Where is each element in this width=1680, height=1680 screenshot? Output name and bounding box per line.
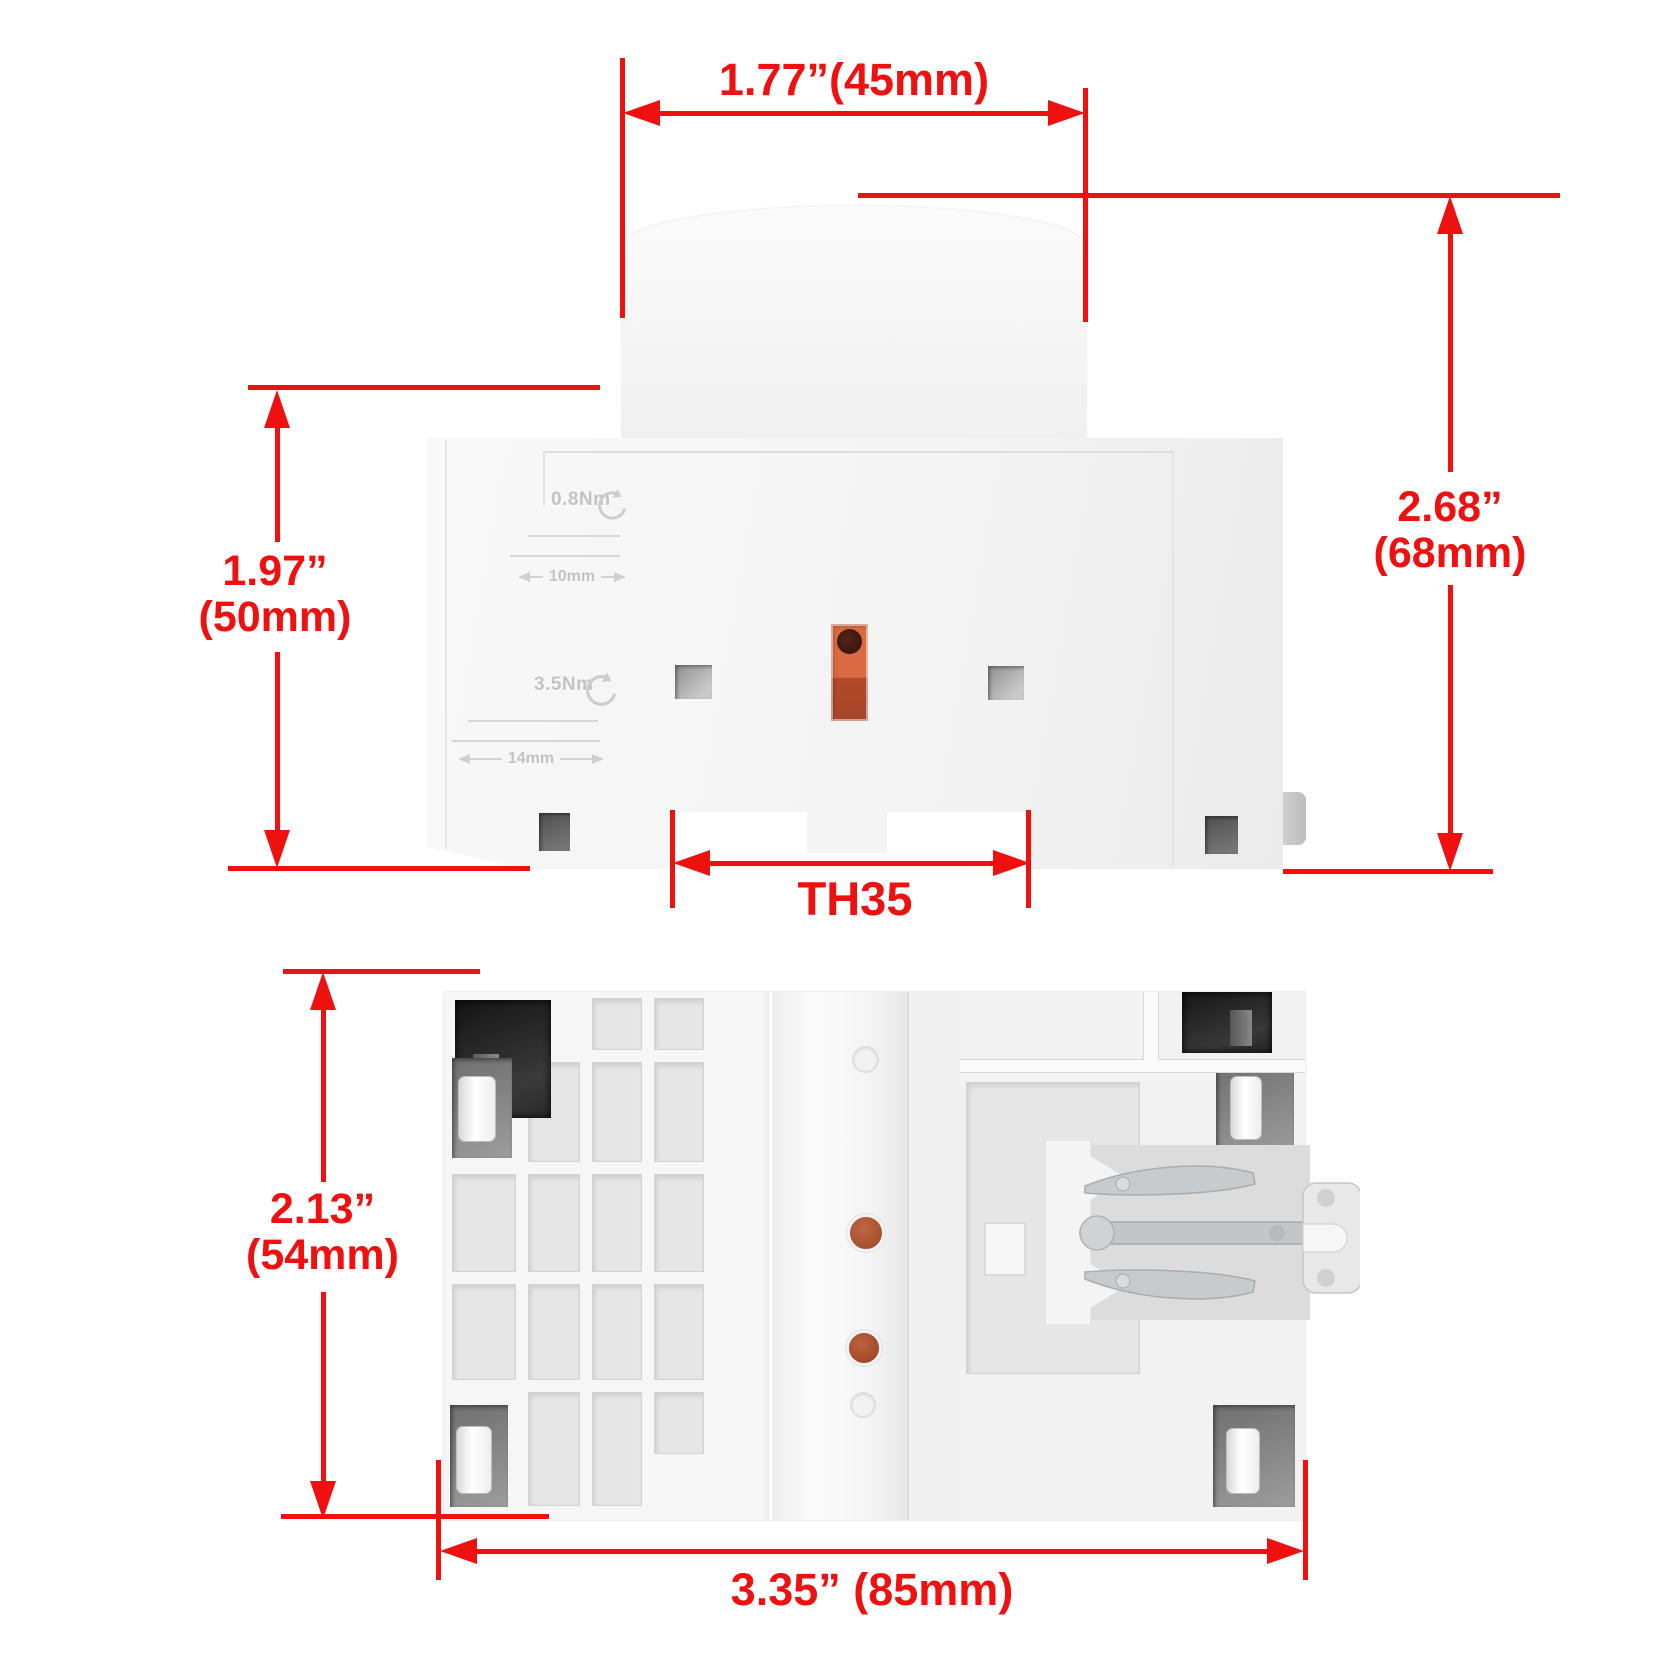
clip-release-tab xyxy=(1303,1183,1360,1293)
center-channel-ridge xyxy=(770,992,909,1520)
arrow-left-icon xyxy=(673,850,710,876)
gauge-upper-dim: 10mm xyxy=(518,568,626,586)
dimension-label-height-68mm: 2.68” (68mm) xyxy=(1330,484,1570,577)
manual-switch-slot xyxy=(831,624,868,721)
arrow-down-icon xyxy=(310,1481,336,1519)
arrow-left-icon xyxy=(440,1538,477,1564)
product-dimension-diagram: 0.8Nm 10mm 3.5Nm 14mm 1.77”(45mm) 2.68” xyxy=(0,0,1680,1680)
arrow-up-icon xyxy=(310,972,336,1010)
arrow-right-icon xyxy=(993,850,1030,876)
roller-clip xyxy=(1226,1428,1260,1494)
grid-cell xyxy=(592,1392,642,1506)
arrow-right-icon xyxy=(1267,1538,1304,1564)
contactor-head xyxy=(622,206,1086,446)
roller-clip xyxy=(1230,1076,1262,1140)
dimension-label-width-85mm: 3.35” (85mm) xyxy=(572,1566,1172,1615)
terminal-clamp xyxy=(1230,1010,1252,1046)
rib-grid xyxy=(444,992,764,1520)
bottom-square-hole-left xyxy=(539,813,570,851)
arrow-down-icon xyxy=(1437,833,1463,871)
gauge-upper-bracket2 xyxy=(510,555,620,557)
engraved-arrow-left-icon xyxy=(518,572,530,582)
square-hole-left xyxy=(675,665,712,699)
mold-line xyxy=(543,451,1173,453)
grid-cell xyxy=(592,1174,642,1272)
dimension-label-din-rail: TH35 xyxy=(755,874,955,925)
dim-inches: 1.97” xyxy=(160,548,390,594)
grid-cell xyxy=(528,1174,580,1272)
left-flange-line xyxy=(445,440,447,848)
clockwise-arrow-icon xyxy=(589,483,635,529)
grid-cell xyxy=(452,1284,516,1380)
dimension-line xyxy=(1448,230,1453,472)
grid-cell xyxy=(592,1284,642,1380)
dimension-line xyxy=(275,652,280,832)
gauge-lower-label: 14mm xyxy=(502,750,560,768)
engraved-arrow-right-icon xyxy=(592,754,604,764)
clockwise-arrow-icon xyxy=(576,666,626,716)
grid-cell xyxy=(452,1174,516,1272)
engraved-arrow-left-icon xyxy=(458,754,470,764)
dimension-label-height-54mm: 2.13” (54mm) xyxy=(200,1186,445,1279)
arrow-up-icon xyxy=(264,390,290,428)
gauge-lower-bracket xyxy=(468,720,598,722)
grid-cell xyxy=(654,1062,704,1162)
dim-inches: 2.68” xyxy=(1330,484,1570,530)
din-rail-clip xyxy=(1015,1140,1360,1325)
grid-cell xyxy=(654,1392,704,1454)
gauge-lower-dim: 14mm xyxy=(458,750,604,768)
dimension-line xyxy=(321,1006,326,1182)
grid-cell xyxy=(528,1284,580,1380)
screw-boss xyxy=(850,1392,876,1418)
dimension-line xyxy=(702,861,1000,866)
dimension-line xyxy=(470,1549,1274,1554)
grid-cell xyxy=(654,1174,704,1272)
rivet-hole xyxy=(847,1214,885,1252)
mount-tab xyxy=(1283,792,1306,845)
grid-cell xyxy=(528,1392,580,1506)
roller-clip xyxy=(458,1076,496,1142)
grid-cell xyxy=(654,1284,704,1380)
grid-cell xyxy=(592,998,642,1050)
gauge-upper-bracket xyxy=(528,535,620,537)
wall-line xyxy=(960,1060,1305,1072)
dimension-label-height-50mm: 1.97” (50mm) xyxy=(160,548,390,641)
terminal-opening xyxy=(1182,992,1272,1053)
rivet-hole xyxy=(846,1330,882,1366)
square-hole-right xyxy=(988,666,1024,700)
dimension-line xyxy=(650,111,1058,116)
gauge-upper-label: 10mm xyxy=(543,568,601,586)
arrow-up-icon xyxy=(1437,196,1463,234)
grid-cell xyxy=(654,998,704,1050)
screw-boss xyxy=(852,1046,879,1073)
bottom-square-hole-right xyxy=(1205,816,1238,854)
extension-line xyxy=(248,385,600,390)
mold-line-corner xyxy=(543,451,545,506)
gauge-lower-bracket2 xyxy=(452,740,600,742)
side-face-line xyxy=(1172,452,1174,867)
dimension-line xyxy=(321,1292,326,1482)
dim-mm: (68mm) xyxy=(1330,530,1570,576)
slot-hole xyxy=(837,629,862,654)
dim-mm: (50mm) xyxy=(160,594,390,640)
dimension-label-width-45mm: 1.77”(45mm) xyxy=(619,56,1089,105)
grid-cell xyxy=(592,1062,642,1162)
dim-inches: 2.13” xyxy=(200,1186,445,1232)
dimension-line xyxy=(275,424,280,542)
dimension-line xyxy=(1448,585,1453,835)
wall-line xyxy=(1144,992,1158,1060)
engraved-arrow-right-icon xyxy=(614,572,626,582)
roller-clip xyxy=(456,1426,492,1494)
arrow-down-icon xyxy=(264,830,290,868)
dim-mm: (54mm) xyxy=(200,1232,445,1278)
